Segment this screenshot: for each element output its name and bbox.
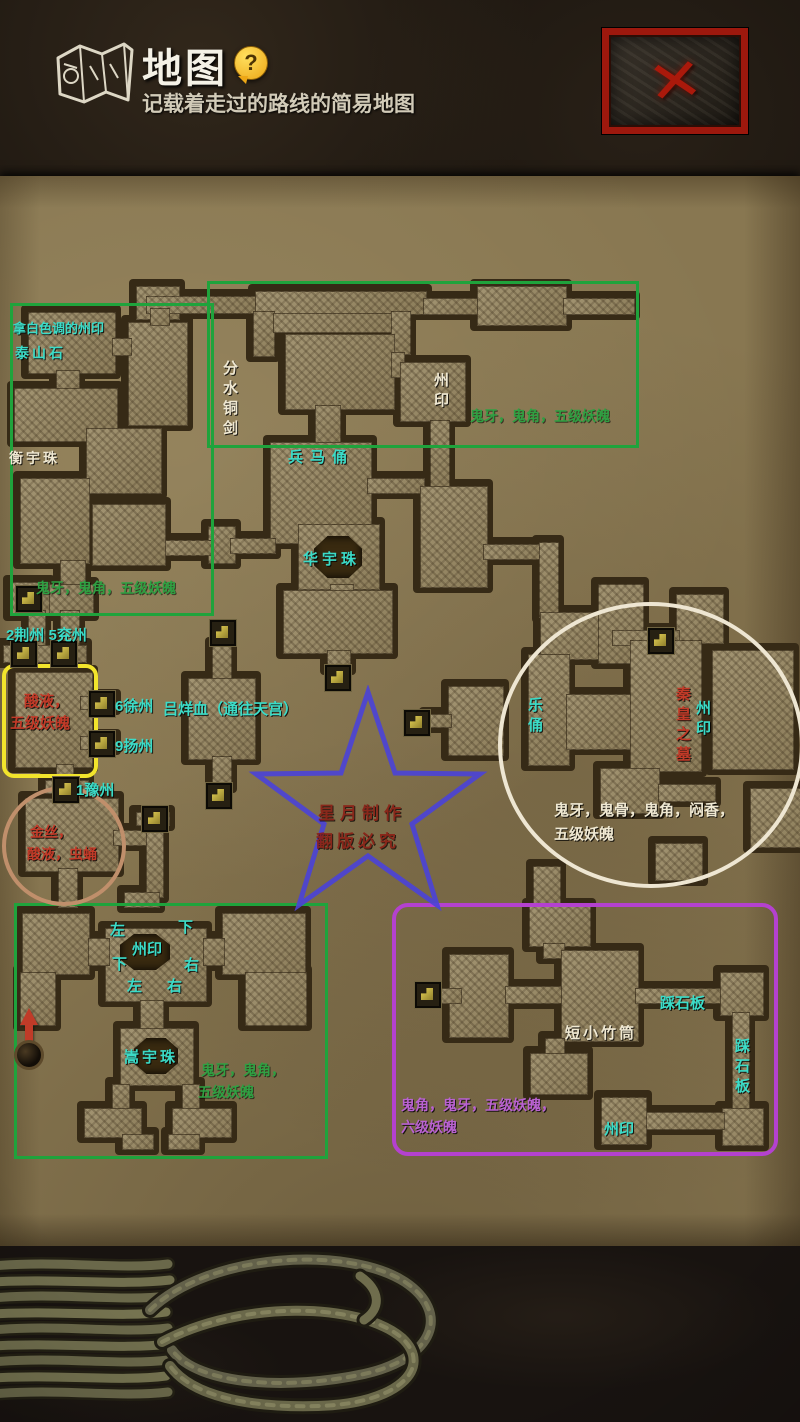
map-label-dir_down1: 下	[178, 916, 193, 937]
map-label-dir_right1: 右	[184, 954, 199, 975]
help-icon[interactable]: ?	[234, 46, 268, 80]
flag-marker-icon	[648, 628, 674, 654]
map-icon	[50, 36, 138, 116]
map-path	[128, 322, 188, 426]
map-label-acid_pupa: 酸液，虫蛹	[27, 844, 97, 864]
map-label-seal_purple: 州印	[604, 1118, 634, 1139]
map-label-huayu_bead: 华宇珠	[303, 548, 360, 569]
map-label-bamboo_tube: 短小竹筒	[565, 1022, 637, 1043]
map-path	[529, 905, 591, 947]
map-label-loot_top: 鬼牙，鬼角，五级妖魄	[470, 406, 610, 426]
map-path	[367, 478, 425, 494]
map-path	[676, 594, 724, 644]
map-label-taishan_stone: 泰山石	[15, 343, 66, 363]
map-label-yangzhou: 9扬州	[115, 735, 153, 756]
map-label-loot_left: 鬼牙，鬼角，五级妖魄	[36, 578, 176, 598]
map-path	[533, 866, 561, 908]
map-path	[113, 830, 149, 846]
map-path	[423, 298, 481, 315]
flag-marker-icon	[206, 783, 232, 809]
map-path	[655, 843, 703, 881]
map-path	[203, 938, 225, 966]
map-path	[420, 486, 488, 588]
flag-marker-icon	[89, 691, 115, 717]
map-path	[722, 1108, 764, 1146]
map-path	[505, 986, 565, 1004]
map-path	[122, 1134, 154, 1150]
map-path	[315, 405, 341, 447]
close-button[interactable]: ✕	[602, 28, 748, 134]
map-path	[563, 298, 635, 315]
map-label-watermark1: 星月制作	[318, 799, 406, 824]
map-path	[92, 504, 166, 566]
ground-band	[0, 1246, 800, 1422]
map-label-dir_left1: 左	[110, 919, 125, 940]
map-label-acid2: 五级妖魄	[10, 712, 70, 733]
map-label-seal_circle: 州印	[692, 700, 713, 740]
map-label-fenshui_sword: 分水铜剑	[219, 360, 240, 440]
map-path	[566, 694, 632, 750]
map-label-white_seal_hint: 拿白色调的州印	[13, 318, 104, 337]
map-label-loot_circle1: 鬼牙，鬼骨，鬼角，闷香，	[554, 799, 734, 820]
map-label-stone_slab_v: 踩石板	[731, 1038, 752, 1098]
map-path	[245, 972, 307, 1026]
map-path	[20, 478, 90, 564]
map-screen: 地图 ? 记载着走过的路线的简易地图 ✕	[0, 0, 800, 1422]
map-label-xuzhou: 6徐州	[115, 695, 153, 716]
map-path	[222, 913, 306, 975]
map-path	[430, 420, 450, 492]
flag-marker-icon	[325, 665, 351, 691]
map-path	[448, 686, 504, 756]
map-path	[188, 678, 256, 760]
map-path	[58, 868, 78, 908]
map-path	[230, 538, 276, 554]
map-label-states_left: 2荆州 5兖州	[6, 624, 87, 645]
map-label-qin_tomb: 秦皇之墓	[672, 686, 693, 766]
map-label-terracotta: 兵马俑	[288, 446, 354, 467]
map-path	[720, 972, 764, 1016]
map-label-seal_top: 州印	[430, 372, 451, 412]
flag-marker-icon	[210, 620, 236, 646]
map-path	[158, 540, 212, 556]
map-path	[643, 1112, 725, 1130]
map-path	[150, 308, 170, 326]
map-path	[88, 938, 110, 966]
player-arrow-icon	[20, 1008, 38, 1025]
page-subtitle: 记载着走过的路线的简易地图	[142, 88, 415, 118]
map-label-dir_left2: 左	[127, 975, 142, 996]
map-path	[477, 286, 567, 326]
map-path	[22, 913, 90, 975]
map-label-loot_circle2: 五级妖魄	[554, 823, 614, 844]
map-path	[124, 892, 160, 908]
map-path	[712, 650, 794, 770]
map-path	[168, 1134, 200, 1150]
map-path	[283, 590, 393, 654]
map-path	[112, 338, 132, 356]
map-label-songyu_bead: 嵩宇珠	[124, 1046, 178, 1067]
map-label-dir_down2: 下	[112, 953, 127, 974]
map-label-loot_purple1: 鬼角，鬼牙，五级妖魄，	[401, 1095, 555, 1115]
map-label-lvyang_blood: 吕烊血（通往天宫）	[163, 698, 298, 719]
map-path	[285, 334, 395, 410]
map-path	[273, 313, 409, 333]
map-label-acid1: 酸液，	[24, 690, 69, 711]
rope-decoration	[0, 1246, 560, 1422]
map-path	[253, 311, 275, 357]
map-path	[530, 1053, 588, 1095]
map-label-hengyu_bead: 衡宇珠	[9, 448, 60, 468]
flag-marker-icon	[89, 731, 115, 757]
map-path	[86, 428, 162, 494]
map-label-dir_right2: 右	[167, 975, 182, 996]
close-icon: ✕	[643, 44, 707, 118]
flag-marker-icon	[404, 710, 430, 736]
map-path	[146, 828, 164, 898]
map-label-goldsilk: 金丝，	[30, 822, 72, 842]
map-label-seal_bottom: 州印	[132, 938, 162, 959]
map-label-loot_bottom1: 鬼牙，鬼角，	[201, 1060, 285, 1080]
map-label-yuzhou: 1豫州	[76, 779, 114, 800]
map-label-stone_slab_h: 踩石板	[660, 992, 705, 1013]
map-path	[750, 788, 800, 848]
page-title: 地图	[142, 36, 228, 94]
map-label-loot_purple2: 六级妖魄	[401, 1117, 457, 1137]
flag-marker-icon	[415, 982, 441, 1008]
pit-hole-icon	[14, 1040, 44, 1070]
map-path	[539, 542, 559, 618]
flag-marker-icon	[142, 806, 168, 832]
map-label-loot_bottom2: 五级妖魄	[198, 1082, 254, 1102]
map-path	[483, 544, 543, 560]
map-label-watermark2: 翻版必究	[316, 827, 400, 852]
map-label-music_figurine: 乐俑	[524, 697, 545, 737]
